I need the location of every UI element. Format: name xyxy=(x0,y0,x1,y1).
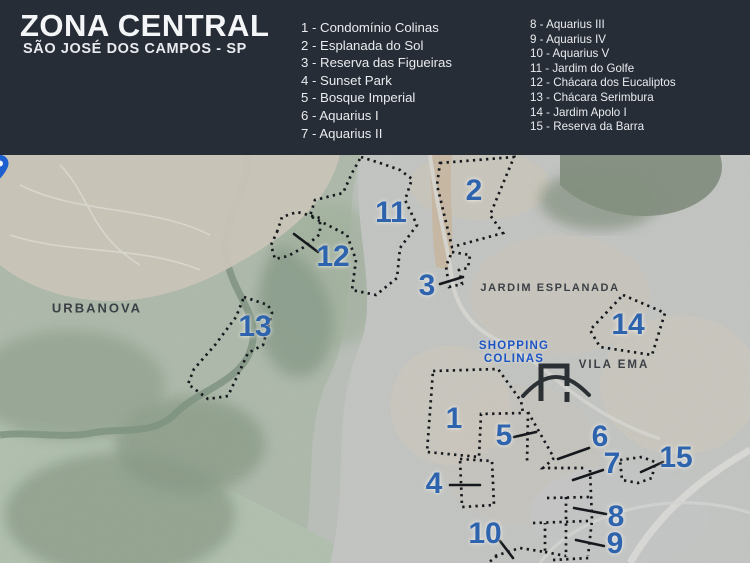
legend-item: 4 - Sunset Park xyxy=(301,72,452,90)
legend-item: 2 - Esplanada do Sol xyxy=(301,37,452,55)
satellite-map: URBANOVA JARDIM ESPLANADA VILA EMA SHOPP… xyxy=(0,155,750,563)
header: ZONA CENTRAL SÃO JOSÉ DOS CAMPOS - SP 1 … xyxy=(0,0,750,155)
legend-item: 8 - Aquarius III xyxy=(530,18,676,33)
poi-label-line2: COLINAS xyxy=(479,353,549,366)
region-marker-4: 4 xyxy=(426,469,443,499)
legend-item: 10 - Aquarius V xyxy=(530,47,676,62)
poi-label-line1: SHOPPING xyxy=(479,340,549,353)
region-marker-12: 12 xyxy=(316,242,349,272)
legend-item: 3 - Reserva das Figueiras xyxy=(301,54,452,72)
region-marker-1: 1 xyxy=(446,404,463,434)
legend-item: 9 - Aquarius IV xyxy=(530,33,676,48)
region-marker-11: 11 xyxy=(375,198,407,228)
region-marker-7: 7 xyxy=(604,449,621,479)
legend-item: 11 - Jardim do Golfe xyxy=(530,62,676,77)
legend-column-1: 1 - Condomínio Colinas 2 - Esplanada do … xyxy=(301,19,452,142)
area-label-urbanova: URBANOVA xyxy=(52,301,142,316)
legend-item: 7 - Aquarius II xyxy=(301,125,452,143)
region-marker-13: 13 xyxy=(238,312,271,342)
region-marker-14: 14 xyxy=(611,310,644,340)
region-marker-5: 5 xyxy=(496,421,513,451)
region-marker-9: 9 xyxy=(607,529,624,559)
legend-item: 14 - Jardim Apolo I xyxy=(530,106,676,121)
page-subtitle: SÃO JOSÉ DOS CAMPOS - SP xyxy=(23,41,247,57)
region-marker-10: 10 xyxy=(468,519,501,549)
page-title: ZONA CENTRAL xyxy=(20,8,269,44)
region-marker-15: 15 xyxy=(659,443,692,473)
area-label-jardim-esplanada: JARDIM ESPLANADA xyxy=(480,282,619,294)
legend-item: 5 - Bosque Imperial xyxy=(301,89,452,107)
area-label-vila-ema: VILA EMA xyxy=(579,359,650,371)
legend-item: 12 - Chácara dos Eucaliptos xyxy=(530,76,676,91)
legend-item: 13 - Chácara Serimbura xyxy=(530,91,676,106)
legend-column-2: 8 - Aquarius III 9 - Aquarius IV 10 - Aq… xyxy=(530,18,676,135)
legend-item: 1 - Condomínio Colinas xyxy=(301,19,452,37)
region-marker-3: 3 xyxy=(419,271,436,301)
map-pin-icon xyxy=(0,155,9,179)
legend-item: 15 - Reserva da Barra xyxy=(530,120,676,135)
region-marker-2: 2 xyxy=(466,176,483,206)
zona-central-infographic: ZONA CENTRAL SÃO JOSÉ DOS CAMPOS - SP 1 … xyxy=(0,0,750,563)
legend-item: 6 - Aquarius I xyxy=(301,107,452,125)
poi-shopping-colinas: SHOPPING COLINAS xyxy=(479,340,549,365)
